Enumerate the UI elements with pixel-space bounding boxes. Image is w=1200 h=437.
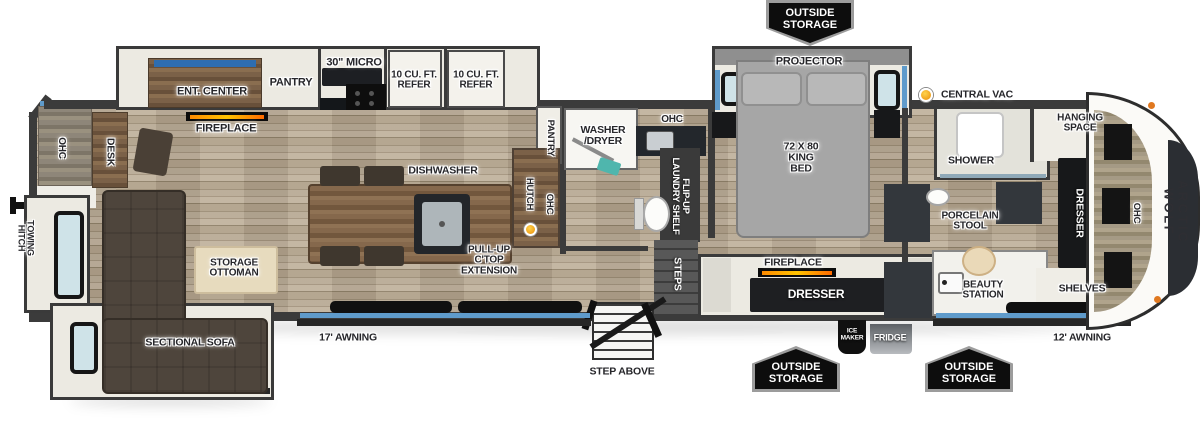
micro-30-label: 30" MICRO xyxy=(326,57,381,68)
outside-storage-bottom-1-badge-body: OUTSIDE STORAGE xyxy=(755,349,837,389)
sectional-sofa-label: SECTIONAL SOFA xyxy=(145,338,234,349)
dresser-front-label: DRESSER xyxy=(1074,188,1085,237)
vac-inlet-dot xyxy=(524,223,537,236)
storage-ottoman-label: STORAGE OTTOMAN xyxy=(210,259,259,280)
floorplan-canvas: OHCDESKTOWING HITCHENT. CENTERPANTRY30" … xyxy=(0,0,1200,437)
hanging-space-label: HANGING SPACE xyxy=(1057,114,1103,135)
central-vac-dot xyxy=(919,88,933,102)
refer-1-label: 10 CU. FT. REFER xyxy=(391,71,437,92)
dresser-bedroom-label: DRESSER xyxy=(788,288,845,300)
outside-storage-top-badge-body: OUTSIDE STORAGE xyxy=(769,3,851,43)
pullup-ctop-label: PULL-UP C'TOP EXTENSION xyxy=(461,245,517,276)
towing-hitch-label: TOWING HITCH xyxy=(16,220,35,256)
fridge-label: FRIDGE xyxy=(874,333,907,342)
shelves-label: SHELVES xyxy=(1059,284,1106,295)
steps-label: STEPS xyxy=(672,257,683,290)
ent-center-label: ENT. CENTER xyxy=(177,86,247,97)
fireplace-bedroom-label: FIREPLACE xyxy=(764,258,822,269)
ice-maker-label: ICE MAKER xyxy=(841,328,864,342)
outside-storage-bottom-2-badge-body: OUTSIDE STORAGE xyxy=(928,349,1010,389)
outside-storage-bottom-1-badge: OUTSIDE STORAGE xyxy=(752,346,840,392)
pantry-mid-label: PANTRY xyxy=(545,120,555,157)
ohc-bath-label: OHC xyxy=(661,115,683,125)
washer-dryer-label: WASHER /DRYER xyxy=(581,125,626,147)
outside-storage-top-badge: OUTSIDE STORAGE xyxy=(766,0,854,46)
refer-2-label: 10 CU. FT. REFER xyxy=(453,71,499,92)
dishwasher-label: DISHWASHER xyxy=(408,166,477,177)
fireplace-living-label: FIREPLACE xyxy=(196,123,257,134)
beauty-station-label: BEAUTY STATION xyxy=(962,281,1003,302)
ohc-hutch-label: OHC xyxy=(544,194,554,215)
outside-storage-bottom-2-badge: OUTSIDE STORAGE xyxy=(925,346,1013,392)
ohc-rear-label: OHC xyxy=(56,137,66,159)
flipup-laundry-label: FLIP-UP LAUNDRY SHELF xyxy=(670,157,690,234)
outside-storage-bottom-2-badge-text: OUTSIDE STORAGE xyxy=(942,361,996,385)
projector-label: PROJECTOR xyxy=(776,56,842,67)
outside-storage-top-badge-text: OUTSIDE STORAGE xyxy=(783,7,837,31)
porcelain-stool-label: PORCELAIN STOOL xyxy=(941,212,998,233)
shower-label: SHOWER xyxy=(948,156,994,167)
hutch-label: HUTCH xyxy=(524,178,534,210)
central-vac-label: CENTRAL VAC xyxy=(941,90,1013,101)
ohc-front-label: OHC xyxy=(1131,203,1141,224)
pantry-kitchen-label: PANTRY xyxy=(270,77,313,88)
desk-label: DESK xyxy=(105,138,116,166)
labels-layer: OHCDESKTOWING HITCHENT. CENTERPANTRY30" … xyxy=(0,0,1200,437)
awning-12-label: 12' AWNING xyxy=(1053,333,1111,344)
step-above-label: STEP ABOVE xyxy=(589,367,654,378)
awning-17-label: 17' AWNING xyxy=(319,333,377,344)
king-bed-label: 72 X 80 KING BED xyxy=(784,142,819,175)
outside-storage-bottom-1-badge-text: OUTSIDE STORAGE xyxy=(769,361,823,385)
arctic-wolf-label: ARCTIC WOLF xyxy=(1162,180,1189,244)
